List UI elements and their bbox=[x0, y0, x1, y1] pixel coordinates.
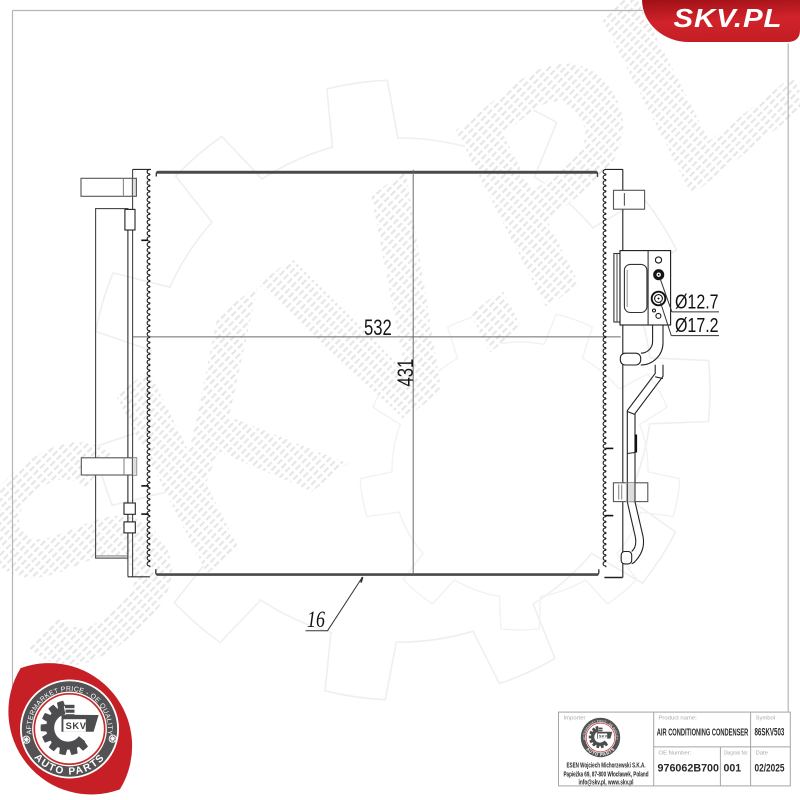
svg-text:532: 532 bbox=[364, 316, 392, 341]
svg-text:02/2025: 02/2025 bbox=[755, 762, 785, 774]
svg-text:info@skv.pl, www.skv.pl: info@skv.pl, www.skv.pl bbox=[579, 779, 634, 786]
svg-text:Ø17.2: Ø17.2 bbox=[675, 313, 719, 336]
svg-text:AIR CONDITIONING CONDENSER: AIR CONDITIONING CONDENSER bbox=[657, 727, 749, 738]
svg-text:Ø12.7: Ø12.7 bbox=[675, 289, 719, 312]
svg-text:Papieżka 69, 87-800 Włocławek,: Papieżka 69, 87-800 Włocławek, Poland bbox=[564, 771, 649, 778]
svg-text:ESEN Wojciech Michorzewski S.K: ESEN Wojciech Michorzewski S.K.A. bbox=[567, 763, 646, 770]
svg-text:SKV: SKV bbox=[599, 735, 608, 739]
svg-text:SKV: SKV bbox=[66, 721, 87, 731]
svg-text:Symbol: Symbol bbox=[756, 716, 776, 722]
svg-text:Importer: Importer bbox=[564, 716, 586, 722]
svg-text:976062B700: 976062B700 bbox=[658, 762, 720, 774]
svg-text:86SKV503: 86SKV503 bbox=[755, 726, 785, 738]
svg-text:431: 431 bbox=[393, 359, 418, 387]
svg-text:Diagram No:: Diagram No: bbox=[724, 751, 749, 757]
svg-text:001: 001 bbox=[724, 762, 742, 774]
svg-text:Date: Date bbox=[756, 751, 769, 757]
svg-text:Product name:: Product name: bbox=[659, 716, 698, 722]
svg-text:16: 16 bbox=[307, 608, 326, 633]
svg-text:SKV.PL: SKV.PL bbox=[674, 4, 783, 33]
svg-text:OE Number:: OE Number: bbox=[659, 751, 692, 757]
